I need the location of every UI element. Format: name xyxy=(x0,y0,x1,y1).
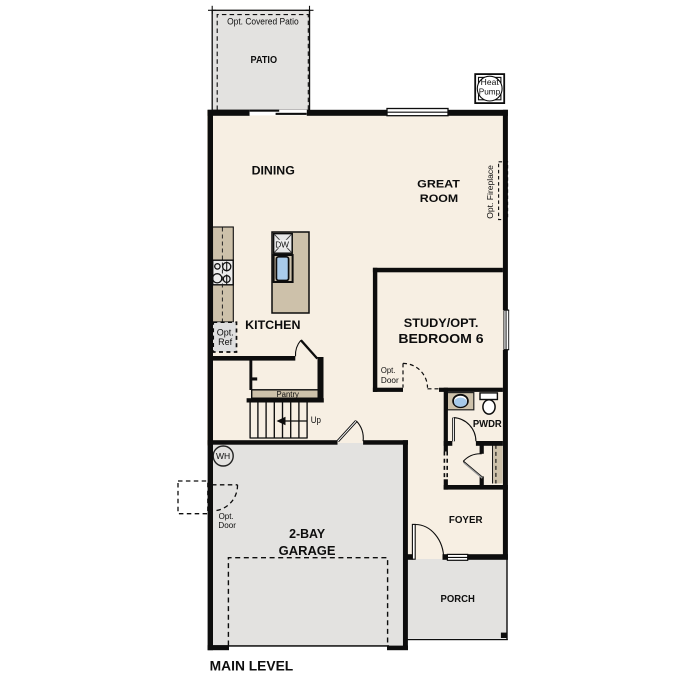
svg-text:FOYER: FOYER xyxy=(449,514,483,526)
svg-text:Heat: Heat xyxy=(481,77,500,87)
svg-text:Up: Up xyxy=(311,415,321,425)
svg-text:Pantry: Pantry xyxy=(276,390,299,399)
svg-text:DW: DW xyxy=(275,239,289,249)
svg-text:Opt. Fireplace: Opt. Fireplace xyxy=(485,165,495,219)
svg-text:GARAGE: GARAGE xyxy=(279,544,336,558)
svg-text:BEDROOM 6: BEDROOM 6 xyxy=(398,332,483,346)
svg-text:PATIO: PATIO xyxy=(251,55,278,66)
svg-text:WH: WH xyxy=(216,451,230,461)
svg-text:PORCH: PORCH xyxy=(441,594,475,605)
svg-text:Pump: Pump xyxy=(479,87,501,97)
svg-text:DINING: DINING xyxy=(252,163,295,177)
svg-text:Opt.: Opt. xyxy=(217,327,234,337)
svg-text:STUDY/OPT.: STUDY/OPT. xyxy=(404,318,479,330)
svg-text:KITCHEN: KITCHEN xyxy=(245,318,300,332)
svg-text:ROOM: ROOM xyxy=(420,193,458,205)
svg-text:2-BAY: 2-BAY xyxy=(289,527,326,541)
svg-text:Door: Door xyxy=(218,520,236,530)
svg-text:MAIN LEVEL: MAIN LEVEL xyxy=(210,659,294,674)
svg-text:Door: Door xyxy=(381,376,399,385)
svg-text:Opt. Covered Patio: Opt. Covered Patio xyxy=(227,16,299,26)
svg-text:GREAT: GREAT xyxy=(417,178,460,190)
svg-text:PWDR: PWDR xyxy=(473,419,502,430)
svg-text:Opt.: Opt. xyxy=(381,366,396,375)
svg-text:Ref: Ref xyxy=(218,337,233,347)
